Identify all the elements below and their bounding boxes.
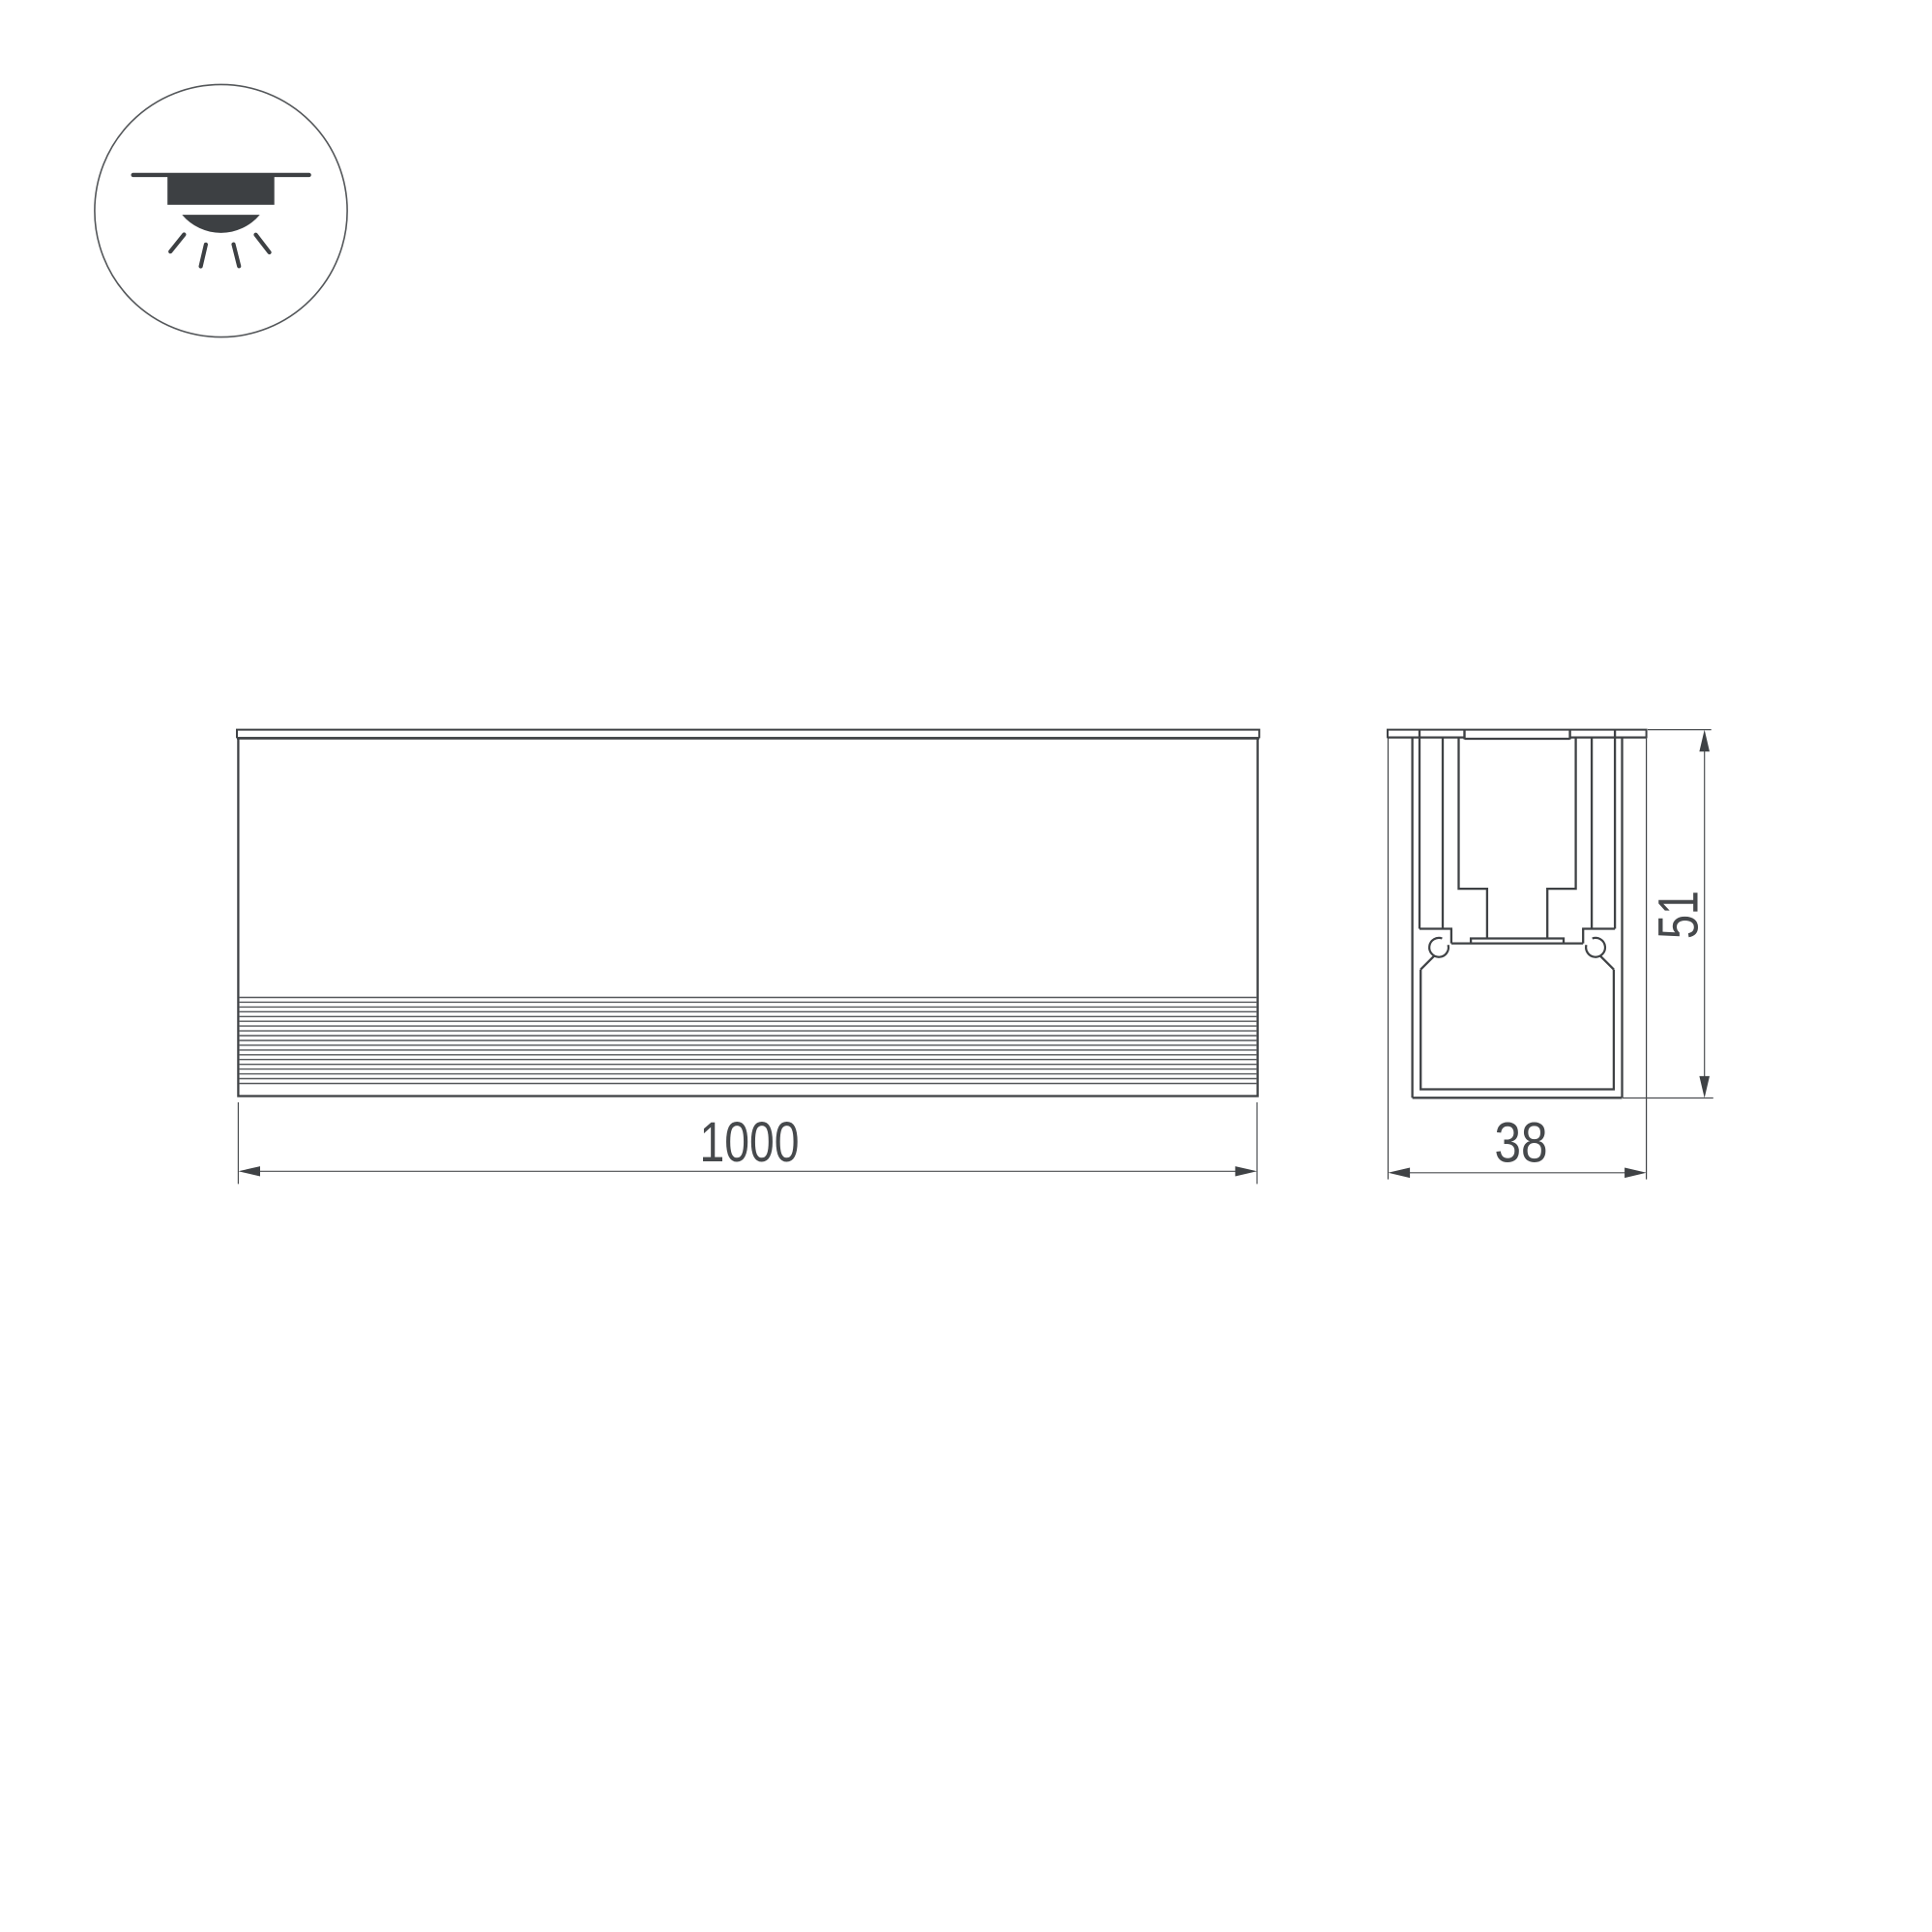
svg-text:1000: 1000 — [700, 1111, 800, 1174]
svg-text:38: 38 — [1495, 1111, 1548, 1174]
svg-text:51: 51 — [1648, 891, 1711, 939]
